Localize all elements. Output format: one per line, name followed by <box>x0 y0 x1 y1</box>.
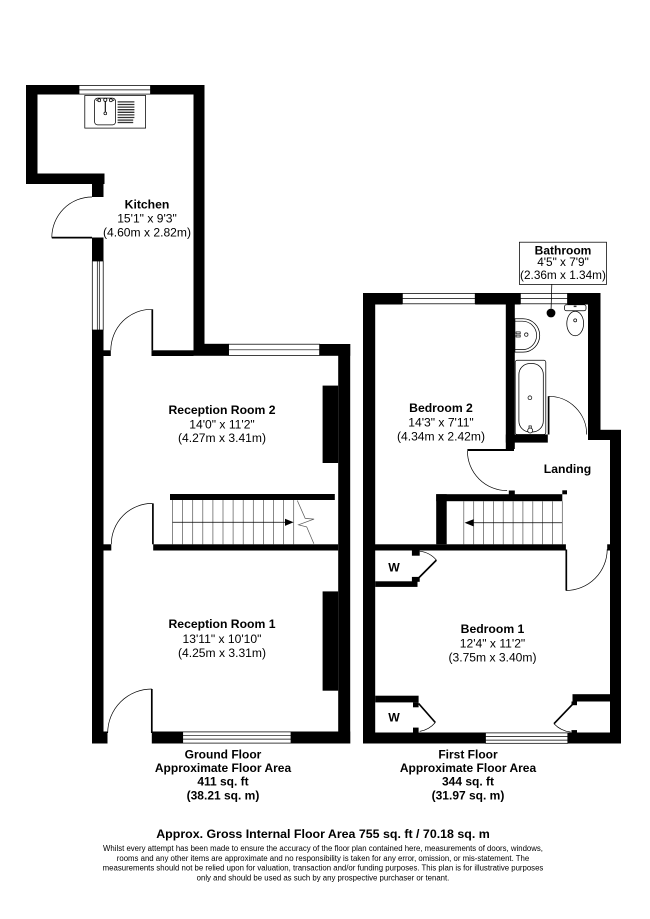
svg-text:Approx. Gross Internal Floor A: Approx. Gross Internal Floor Area 755 sq… <box>156 827 490 841</box>
svg-text:measurements should not be rel: measurements should not be relied upon f… <box>103 864 544 873</box>
svg-text:Bedroom 1: Bedroom 1 <box>461 622 525 636</box>
svg-text:(31.97 sq. m): (31.97 sq. m) <box>432 788 505 802</box>
svg-text:First Floor: First Floor <box>438 748 498 762</box>
svg-text:Approximate Floor Area: Approximate Floor Area <box>155 761 292 775</box>
svg-text:(3.75m x 3.40m): (3.75m x 3.40m) <box>448 651 536 665</box>
svg-text:(4.25m x 3.31m): (4.25m x 3.31m) <box>178 646 266 660</box>
svg-text:W: W <box>388 711 400 725</box>
svg-text:Reception Room 1: Reception Room 1 <box>169 617 276 631</box>
svg-text:(4.34m x 2.42m): (4.34m x 2.42m) <box>397 430 485 444</box>
svg-text:(4.60m x 2.82m): (4.60m x 2.82m) <box>103 226 191 240</box>
svg-text:Kitchen: Kitchen <box>125 198 170 212</box>
svg-text:rooms and any other items are: rooms and any other items are approximat… <box>117 854 529 863</box>
svg-text:15'1" x 9'3": 15'1" x 9'3" <box>117 212 177 226</box>
svg-text:(2.36m x 1.34m): (2.36m x 1.34m) <box>520 268 606 282</box>
svg-text:13'11" x 10'10": 13'11" x 10'10" <box>183 632 262 646</box>
svg-text:Landing: Landing <box>544 462 591 476</box>
svg-text:Ground Floor: Ground Floor <box>185 748 262 762</box>
svg-text:Whilst every attempt has been: Whilst every attempt has been made to en… <box>103 844 543 853</box>
svg-text:14'0" x 11'2": 14'0" x 11'2" <box>189 418 254 432</box>
svg-text:344 sq. ft: 344 sq. ft <box>442 775 494 789</box>
svg-text:4'5" x 7'9": 4'5" x 7'9" <box>537 255 589 269</box>
svg-text:W: W <box>388 560 400 574</box>
svg-text:(4.27m x 3.41m): (4.27m x 3.41m) <box>178 431 266 445</box>
svg-text:14'3" x 7'11": 14'3" x 7'11" <box>408 415 473 429</box>
svg-text:(38.21 sq. m): (38.21 sq. m) <box>187 788 260 802</box>
svg-text:Approximate Floor Area: Approximate Floor Area <box>400 761 537 775</box>
svg-text:Bedroom 2: Bedroom 2 <box>409 401 473 415</box>
svg-text:411 sq. ft: 411 sq. ft <box>197 775 248 789</box>
svg-text:12'4" x 11'2": 12'4" x 11'2" <box>460 636 525 650</box>
svg-text:only and should be used as suc: only and should be used as such by any p… <box>197 873 450 882</box>
svg-text:Reception Room 2: Reception Room 2 <box>169 403 276 417</box>
